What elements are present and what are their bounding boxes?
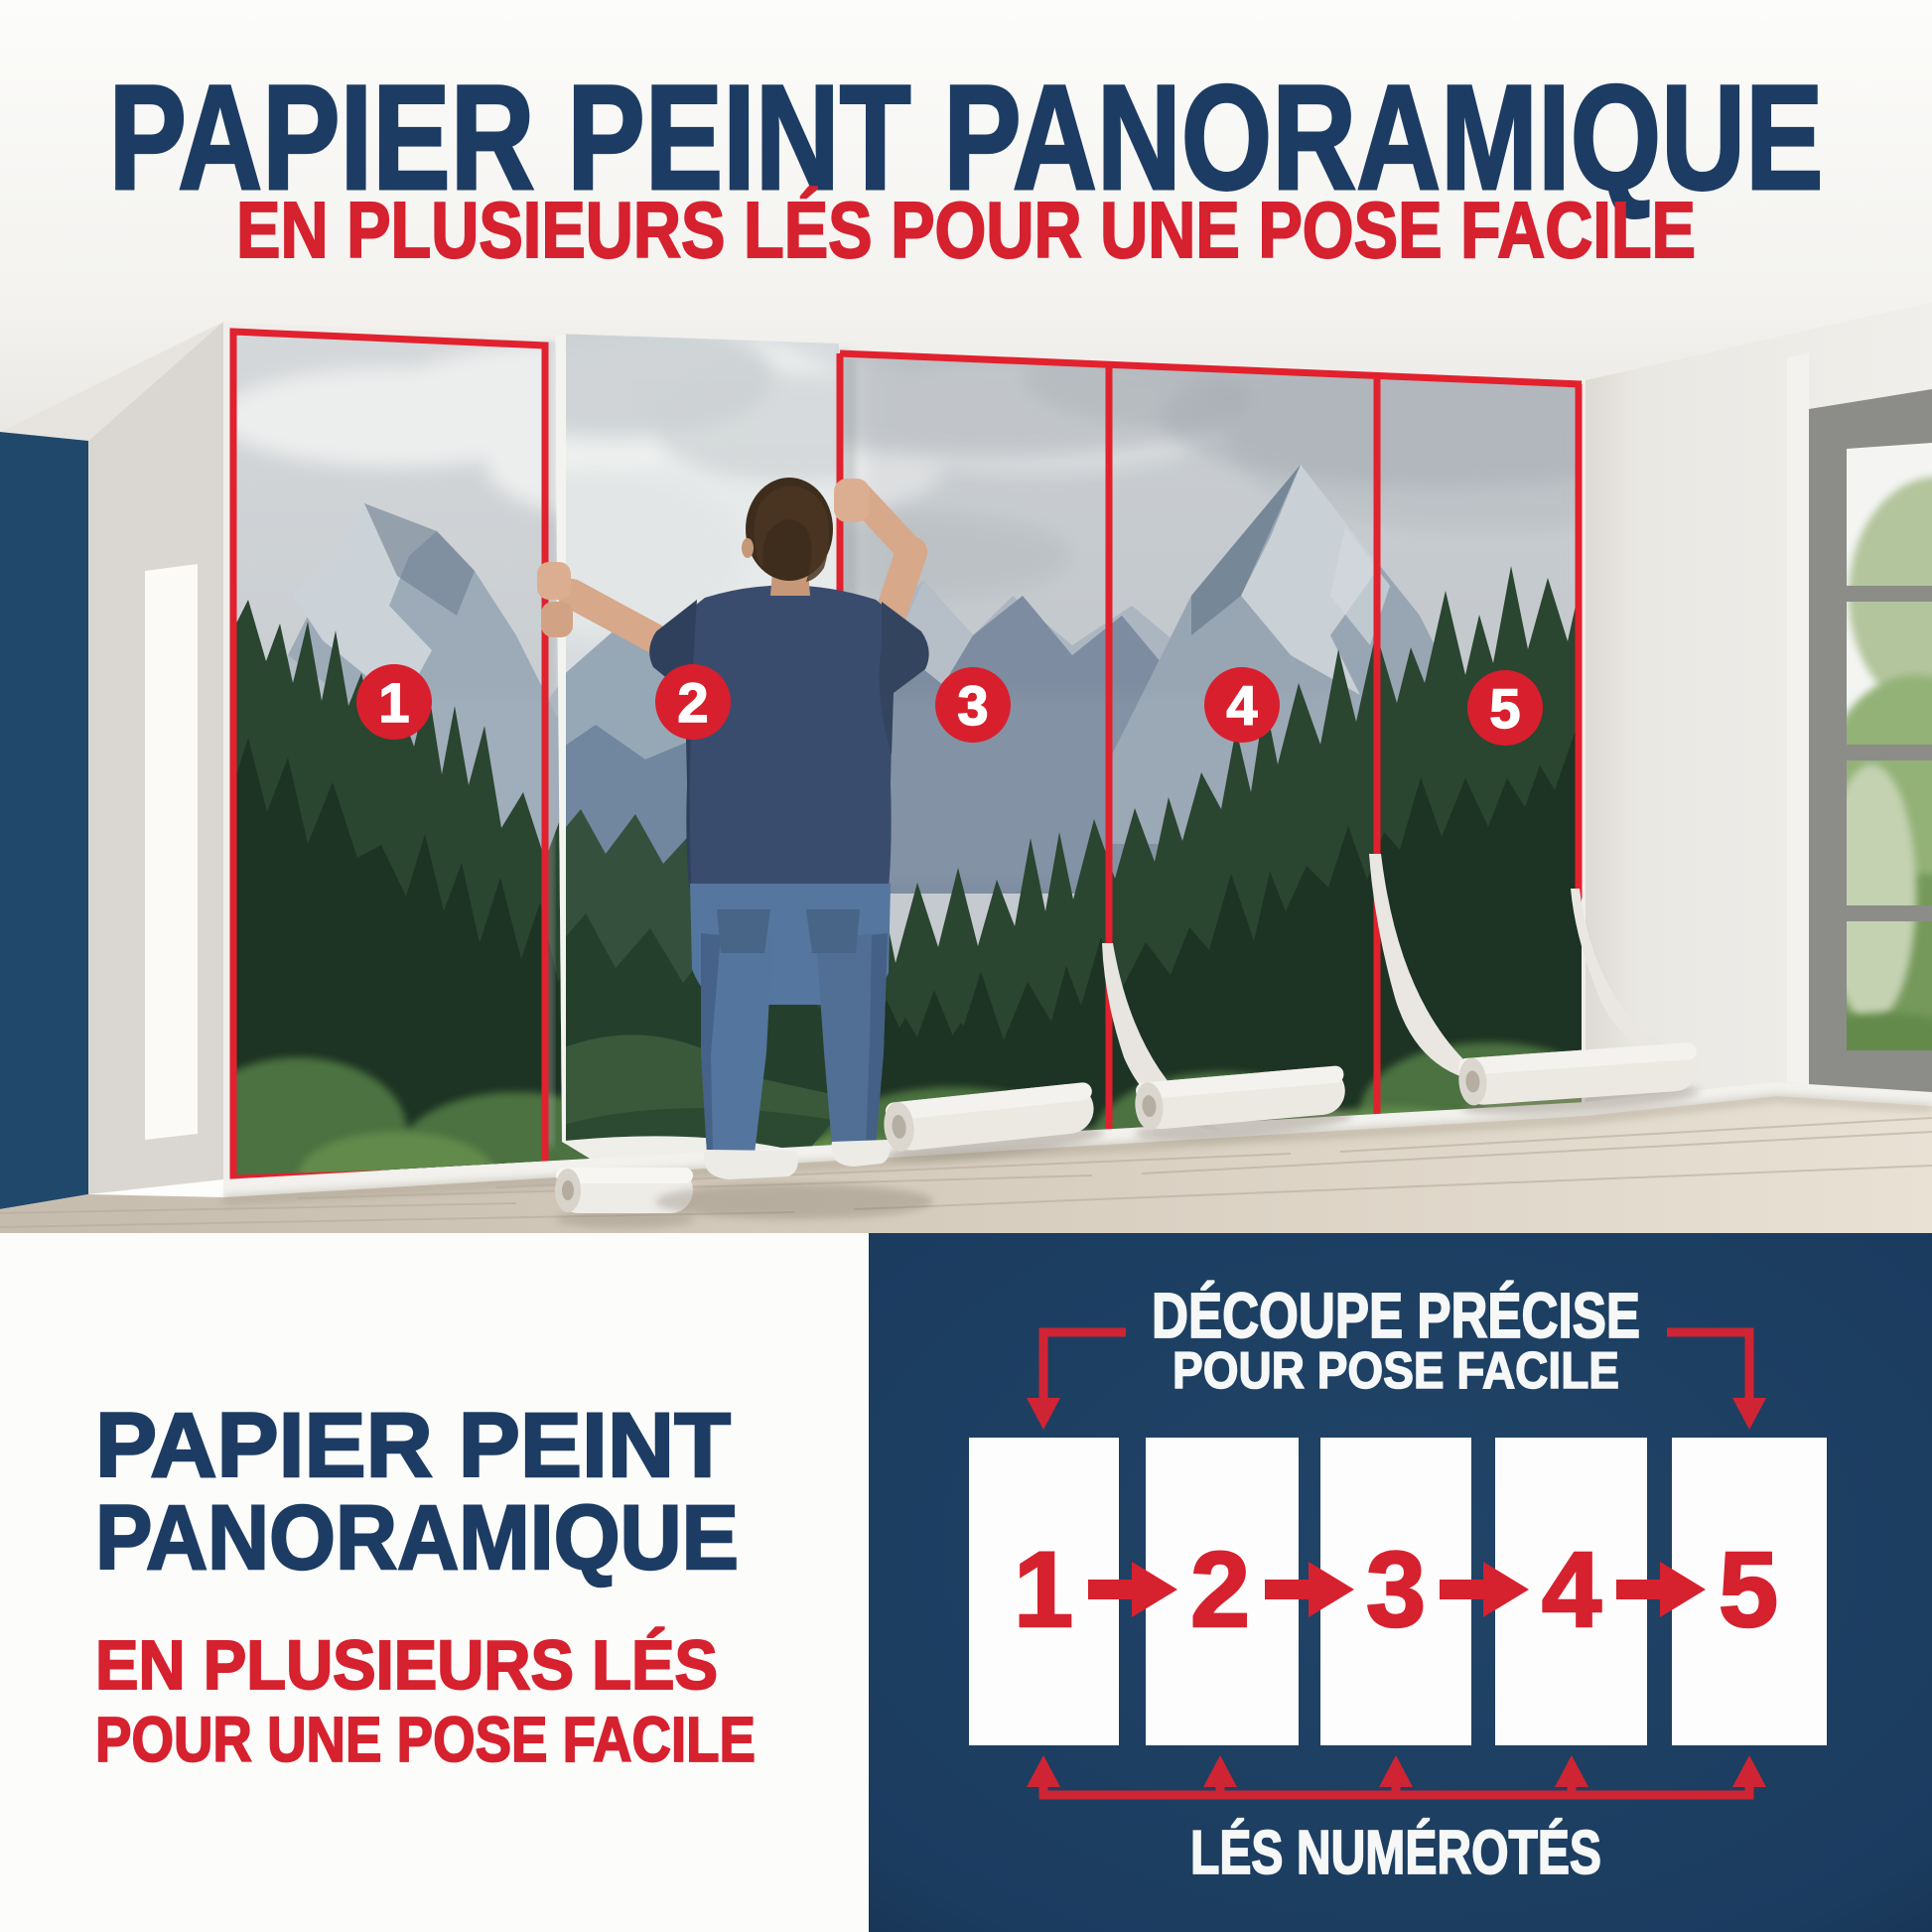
svg-text:EN PLUSIEURS LÉS: EN PLUSIEURS LÉS [95,1626,718,1704]
svg-text:2: 2 [677,671,708,734]
svg-text:LÉS NUMÉROTÉS: LÉS NUMÉROTÉS [1190,1819,1601,1887]
svg-text:1: 1 [1014,1529,1073,1649]
svg-text:5: 5 [1719,1529,1778,1649]
svg-text:2: 2 [1190,1529,1250,1649]
svg-text:EN PLUSIEURS LÉS POUR UNE POSE: EN PLUSIEURS LÉS POUR UNE POSE FACILE [236,186,1696,274]
svg-text:POUR UNE POSE FACILE: POUR UNE POSE FACILE [95,1704,756,1775]
svg-text:POUR POSE FACILE: POUR POSE FACILE [1173,1342,1619,1400]
svg-text:1: 1 [378,671,409,734]
svg-text:DÉCOUPE PRÉCISE: DÉCOUPE PRÉCISE [1152,1280,1640,1351]
svg-text:3: 3 [1366,1529,1426,1649]
svg-text:4: 4 [1226,674,1257,737]
svg-text:4: 4 [1542,1529,1601,1649]
svg-text:PANORAMIQUE: PANORAMIQUE [95,1487,739,1588]
svg-text:5: 5 [1489,677,1520,740]
svg-text:3: 3 [957,674,988,737]
svg-text:PAPIER PEINT: PAPIER PEINT [95,1395,731,1496]
